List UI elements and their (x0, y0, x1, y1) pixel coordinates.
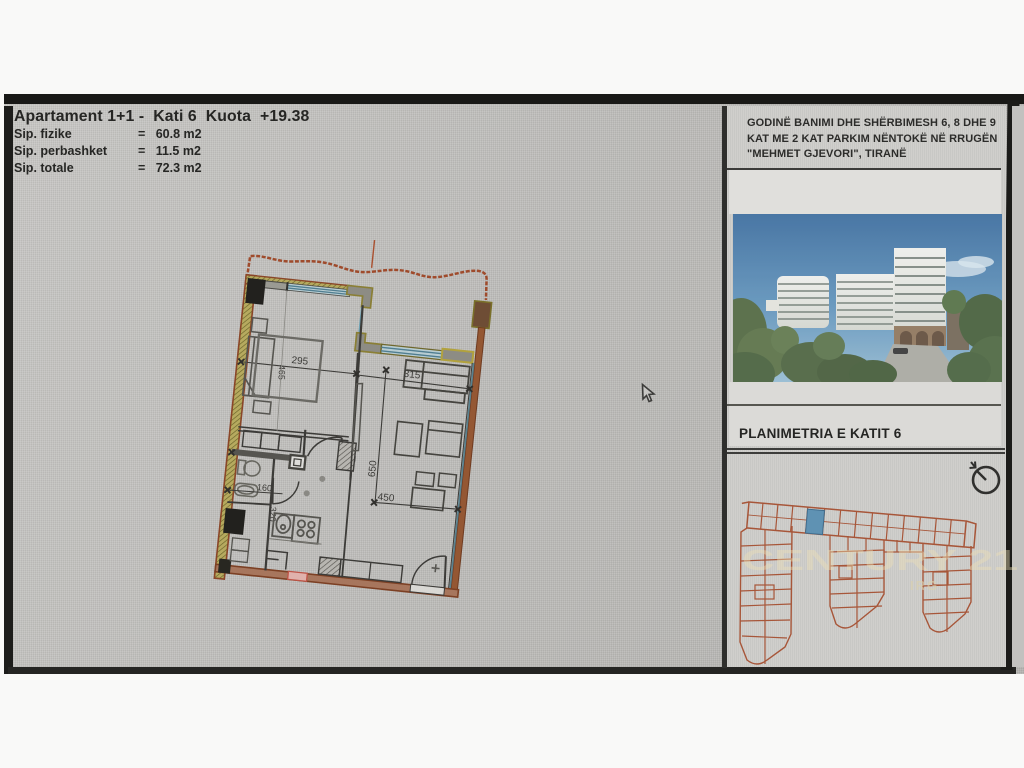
svg-text:160: 160 (257, 482, 273, 493)
svg-text:CENTURY 21: CENTURY 21 (742, 545, 1018, 577)
svg-text:315: 315 (403, 369, 421, 382)
svg-text:295: 295 (291, 355, 309, 368)
svg-text:450: 450 (377, 492, 395, 505)
svg-text:IRG: IRG (910, 578, 939, 593)
svg-text:650: 650 (367, 459, 380, 477)
